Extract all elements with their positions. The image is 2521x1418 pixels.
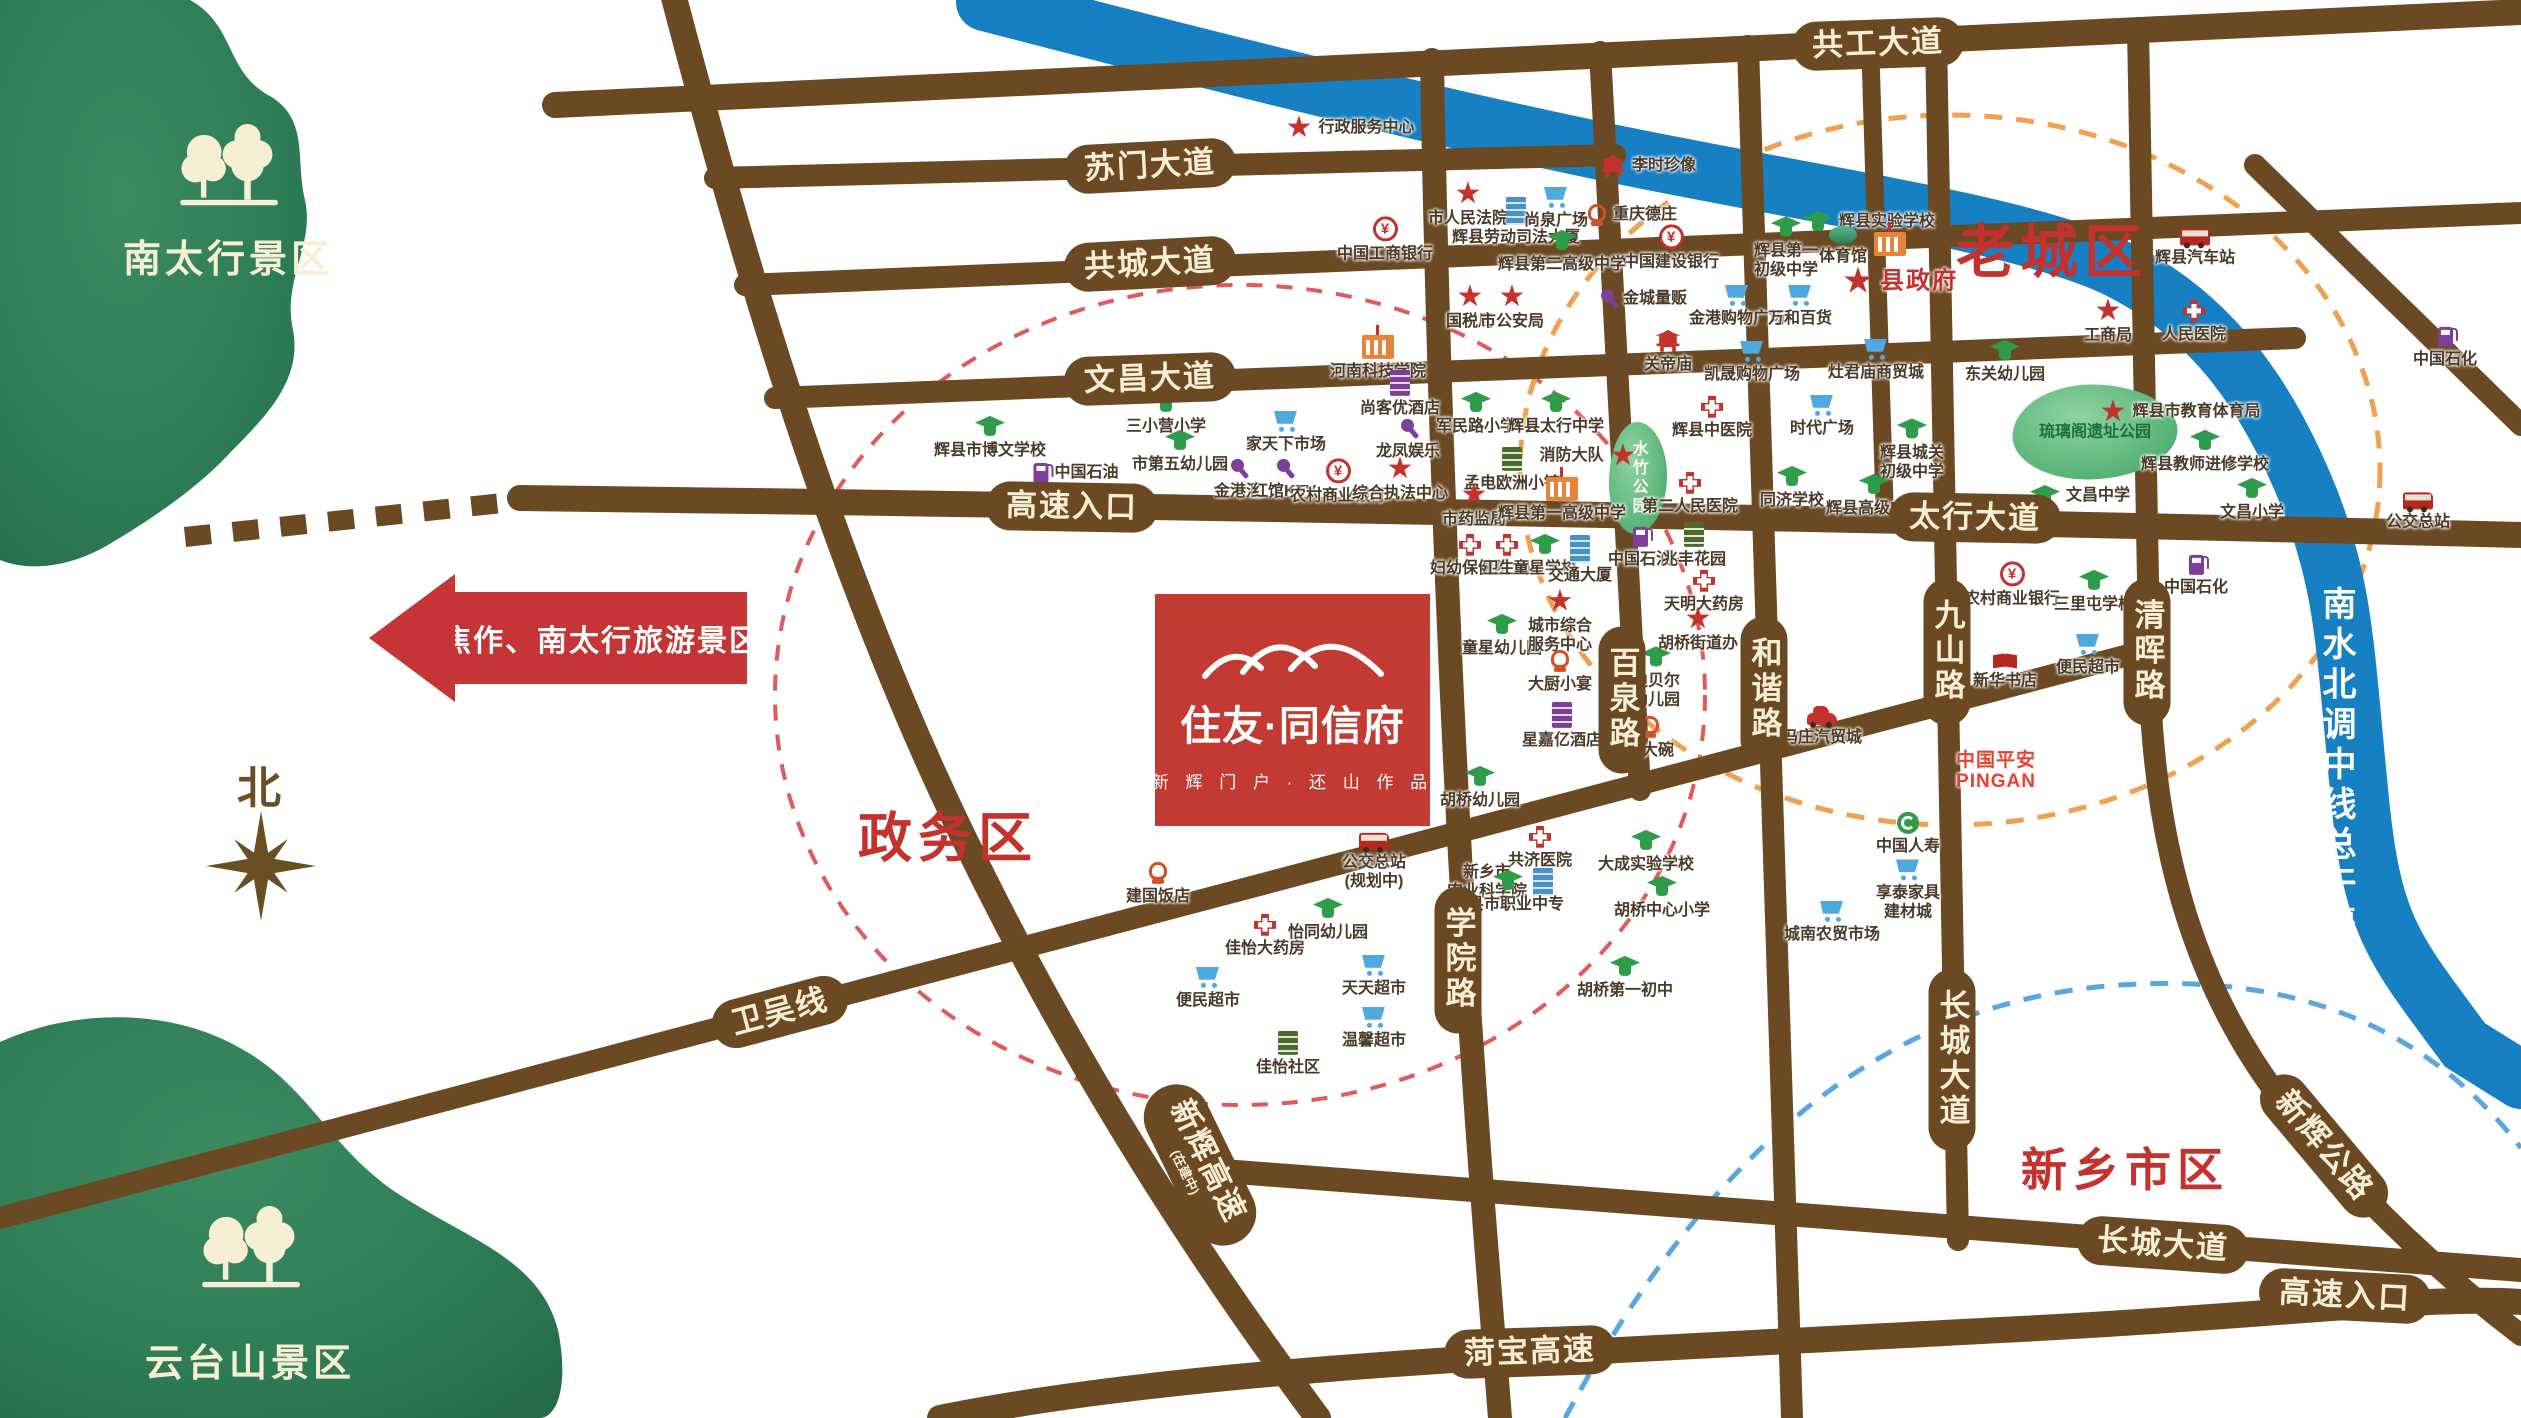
map-poi: 胡桥中心小学: [1614, 876, 1710, 920]
poi-label: 辉县第一 初级中学: [1754, 241, 1818, 279]
poi-label: 中国石化: [2164, 578, 2228, 597]
map-poi: 万和百货: [1768, 284, 1832, 328]
road-label-text: 清晖路: [2130, 599, 2165, 704]
school-icon: [1547, 230, 1577, 252]
road-label: 文昌大道: [1063, 352, 1237, 407]
map-poi: 辉县城关 初级中学: [1880, 418, 1944, 481]
area-label: 老城区: [1956, 205, 2148, 289]
gas-icon: [1632, 527, 1647, 547]
map-poi: 重庆德庄: [1587, 204, 1677, 226]
school-icon: [1647, 876, 1677, 898]
road-label-text: 菏宝高速: [1463, 1331, 1596, 1371]
school-icon: [1165, 430, 1195, 452]
cart-icon: [2075, 633, 2101, 655]
map-poi: 李时珍像: [1600, 155, 1696, 177]
poi-label: 天天超市: [1342, 979, 1406, 998]
poi-label: 军民路小学: [1436, 417, 1516, 436]
cart-icon: [1195, 966, 1221, 988]
map-poi: 佳怡社区: [1256, 1031, 1320, 1077]
road-label: 高速入口: [986, 481, 1159, 533]
map-poi: ★工商局: [2084, 299, 2132, 345]
map-poi: 中国平安 PINGAN: [1956, 751, 2036, 793]
map-poi: 大成实验学校: [1598, 830, 1694, 874]
poi-label: 公交总站 (规划中): [1342, 853, 1406, 891]
taihang-scenic-label: 南太行景区: [123, 228, 333, 283]
bus-icon: [2403, 492, 2433, 509]
map-poi: 辉县中医院: [1672, 396, 1752, 440]
bank-icon: ¥: [1999, 561, 2024, 586]
map-poi: ¥中国工商银行: [1337, 216, 1433, 263]
map-poi: 东关幼儿园: [1965, 340, 2045, 384]
map-poi: 辉县第一 初级中学: [1754, 216, 1818, 279]
road-label: 共城大道: [1063, 235, 1237, 293]
mic-icon: [1399, 419, 1417, 439]
poi-label: 中国石油: [1054, 463, 1118, 482]
poi-label: 行政服务中心: [1318, 118, 1414, 137]
poi-label: 万和百货: [1768, 309, 1832, 328]
poi-label: 灶君庙商贸城: [1828, 363, 1924, 382]
map-poi: 辉县汽车站: [2155, 228, 2235, 267]
road-label-text: 和谐路: [1747, 637, 1782, 742]
food-icon: [1587, 204, 1607, 226]
map-poi: ¥农村商业银行: [1964, 561, 2060, 608]
hosp-icon: [1529, 826, 1551, 848]
road-label-text: 共工大道: [1811, 23, 1944, 63]
poi-label: 县政府: [1880, 268, 1958, 297]
temple-icon: [1655, 330, 1681, 352]
map-poi: 大厨小宴: [1528, 650, 1592, 694]
star-icon: ★: [1387, 457, 1414, 481]
poi-label: 辉县中医院: [1672, 421, 1752, 440]
star-icon: ★: [1499, 285, 1526, 309]
yuntai-scenic-label: 云台山景区: [145, 1332, 355, 1387]
poi-label: 综合执法中心: [1352, 484, 1448, 503]
map-poi: 辉县第一高级中学: [1498, 477, 1626, 523]
map-poi: 第二人民医院: [1642, 472, 1738, 516]
bank-icon: ¥: [1658, 224, 1683, 249]
taihang-direction-arrow: 焦作、南太行旅游景区: [455, 592, 747, 684]
map-poi: ¥中国建设银行: [1623, 224, 1719, 271]
poi-label: 温馨超市: [1342, 1031, 1406, 1050]
school-icon: [1493, 870, 1523, 892]
poi-label: 家天下市场: [1246, 435, 1326, 454]
logo-subtitle: 新 辉 门 户 · 还 山 作 品: [1152, 768, 1433, 793]
map-poi: 中国人寿: [1876, 812, 1940, 856]
map-poi: 辉县太行中学: [1508, 392, 1604, 436]
poi-label: 新华书店: [1973, 671, 2037, 690]
school-icon: [1990, 340, 2020, 362]
map-poi: 公交总站: [2386, 492, 2450, 531]
poi-label: 辉县汽车站: [2155, 248, 2235, 267]
cart-icon: [1361, 954, 1387, 976]
cart-icon: [1361, 1006, 1387, 1028]
map-poi: 建国饭店: [1126, 862, 1190, 906]
school-icon: [1461, 392, 1491, 414]
poi-label: 胡桥幼儿园: [1440, 791, 1520, 810]
campus-icon: [1874, 232, 1906, 256]
map-poi: ★市公安局: [1480, 285, 1544, 331]
map-poi: [1874, 232, 1906, 256]
map-poi: 中国石化: [2164, 555, 2228, 597]
project-logo: 住友·同信府 新 辉 门 户 · 还 山 作 品: [1155, 594, 1430, 826]
bgreen-icon: [1502, 447, 1522, 471]
arrow-label: 焦作、南太行旅游景区: [441, 616, 761, 660]
hosp-icon: [1254, 914, 1276, 936]
poi-label: 李时珍像: [1632, 156, 1696, 175]
map-poi: 金城量贩: [1599, 289, 1687, 309]
school-icon: [2190, 430, 2220, 452]
school-icon: [1631, 830, 1661, 852]
map-poi: 同济学校: [1760, 466, 1824, 510]
road-label-text: 百泉路: [1605, 647, 1640, 752]
map-poi: 冯庄汽贸城: [1782, 705, 1862, 747]
bus-icon: [2180, 228, 2210, 245]
road-label-text: 苏门大道: [1083, 144, 1217, 186]
school-icon: [1777, 466, 1807, 488]
map-poi: 交通大厦: [1548, 535, 1612, 585]
road-label: 苏门大道: [1063, 137, 1237, 195]
map-poi: 三里屯学校: [2054, 570, 2134, 614]
star-icon: ★: [2095, 299, 2122, 323]
school-icon: [1859, 474, 1889, 496]
map-poi: 灶君庙商贸城: [1828, 338, 1924, 382]
logo-title: 住友·同信府: [1180, 692, 1405, 752]
road-label: 长城大道: [1929, 969, 1976, 1151]
star-icon: ★: [1685, 607, 1712, 631]
gas-icon: [1033, 463, 1048, 483]
poi-label: 冯庄汽贸城: [1782, 728, 1862, 747]
school-icon: [1771, 216, 1801, 238]
cart-icon: [1273, 410, 1299, 432]
school-icon: [1487, 614, 1517, 636]
poi-label: 人民医院: [2162, 325, 2226, 344]
compass-icon: [201, 806, 321, 926]
map-poi: ★县政府: [1842, 268, 1958, 297]
map-poi: 中国石油: [1033, 463, 1118, 483]
poi-label: 大厨小宴: [1528, 675, 1592, 694]
road-label: 和谐路: [1741, 617, 1788, 764]
river-label: 南水北调中线总干渠: [2312, 586, 2361, 946]
map-poi: 新华书店: [1973, 653, 2037, 690]
map-poi: 公交总站 (规划中): [1342, 833, 1406, 891]
map-poi: 天天超市: [1342, 954, 1406, 998]
poi-label: 东关幼儿园: [1965, 365, 2045, 384]
hotel-icon: [1390, 370, 1410, 396]
road-label-text: 高速入口: [1006, 487, 1139, 524]
poi-label: 时代广场: [1790, 419, 1854, 438]
map-poi: 尚泉广场: [1524, 186, 1588, 230]
hosp-icon: [1693, 570, 1715, 592]
cart-icon: [1895, 858, 1921, 880]
cart-icon: [1739, 340, 1765, 362]
map-poi: ★行政服务中心: [1286, 116, 1415, 140]
star-icon: ★: [2100, 400, 2127, 424]
map-poi: 辉县第二高级中学: [1498, 230, 1626, 274]
book-icon: [1993, 653, 2017, 668]
food-icon: [1550, 650, 1570, 672]
map-poi: 凯晟购物广场: [1704, 340, 1800, 384]
temple-icon: [1600, 155, 1626, 177]
poi-label: 胡桥第一初中: [1577, 981, 1673, 1000]
poi-label: 文昌中学: [2066, 486, 2130, 505]
car-icon: [1807, 713, 1837, 725]
poi-label: 凯晟购物广场: [1704, 365, 1800, 384]
bus-icon: [1359, 833, 1389, 850]
school-icon: [2237, 478, 2267, 500]
poi-label: 辉县市博文学校: [934, 441, 1046, 460]
poi-label: 金城量贩: [1623, 289, 1687, 308]
star-icon: ★: [1286, 116, 1313, 140]
road-label-text: 共城大道: [1083, 242, 1217, 284]
hosp-icon: [2183, 300, 2205, 322]
road-label-text: 九山路: [1930, 599, 1965, 704]
map-poi: 胡桥第一初中: [1577, 956, 1673, 1000]
poi-label: 农村商业银行: [1964, 589, 2060, 608]
road-label-text: 文昌大道: [1083, 358, 1216, 398]
poi-label: 中国工商银行: [1337, 244, 1433, 263]
poi-label: 辉县第二高级中学: [1498, 255, 1626, 274]
poi-label: 市药监局: [1442, 510, 1506, 529]
map-poi: 人民医院: [2162, 300, 2226, 344]
map-poi: 温馨超市: [1342, 1006, 1406, 1050]
cart-icon: [1787, 284, 1813, 306]
poi-label: 中国建设银行: [1623, 252, 1719, 271]
road-label: 高速入口: [2258, 1267, 2432, 1325]
road-label: 清晖路: [2124, 579, 2171, 726]
poi-label: 建国饭店: [1126, 887, 1190, 906]
cart-icon: [1819, 900, 1845, 922]
bgreen-icon: [1278, 1031, 1298, 1055]
cart-icon: [1543, 186, 1569, 208]
map-poi: 胡桥幼儿园: [1440, 766, 1520, 810]
map-poi: 星嘉亿酒店: [1522, 702, 1602, 750]
road-label: 菏宝高速: [1443, 1325, 1617, 1380]
map-poi: 尚客优酒店: [1360, 370, 1440, 418]
stadium-icon: [1829, 226, 1857, 244]
map-poi: 兆丰花园: [1662, 523, 1726, 569]
map-poi: ★辉县市教育体育局: [2100, 400, 2261, 424]
hosp-icon: [1701, 396, 1723, 418]
poi-label: 怡同幼儿园: [1288, 923, 1368, 942]
poi-label: 同济学校: [1760, 491, 1824, 510]
road-label: 九山路: [1924, 579, 1971, 726]
poi-label: 辉县太行中学: [1508, 417, 1604, 436]
star-icon: ★: [1461, 483, 1488, 507]
gas-icon: [2188, 555, 2203, 575]
map-poi: 军民路小学: [1436, 392, 1516, 436]
poi-label: 文昌小学: [2220, 503, 2284, 522]
life-icon: [1897, 812, 1919, 834]
poi-label: 第二人民医院: [1642, 497, 1738, 516]
map-poi: 辉县市博文学校: [934, 416, 1046, 460]
area-label: 新乡市区: [2021, 1134, 2229, 1200]
poi-label: 胡桥中心小学: [1614, 901, 1710, 920]
map-poi: 城南农贸市场: [1784, 900, 1880, 944]
map-poi: 怡同幼儿园: [1288, 898, 1368, 942]
poi-label: 辉县教师进修学校: [2141, 455, 2269, 474]
poi-label: 公交总站: [2386, 512, 2450, 531]
poi-label: 三里屯学校: [2054, 595, 2134, 614]
poi-label: 便民超市: [2056, 658, 2120, 677]
poi-label: 尚泉广场: [1524, 211, 1588, 230]
campus-icon: [1546, 477, 1578, 501]
road-label-text: 太行大道: [1909, 498, 2042, 535]
area-label: 政务区: [858, 794, 1038, 873]
hosp-icon: [1679, 472, 1701, 494]
yuntai-trees-icon: [185, 1190, 315, 1300]
gas-icon: [2437, 327, 2452, 347]
road-label-text: 高速入口: [2278, 1274, 2412, 1316]
poi-label: 兆丰花园: [1662, 550, 1726, 569]
map-poi: ★综合执法中心: [1352, 457, 1448, 503]
road-label-text: 长城大道: [1935, 989, 1970, 1129]
school-icon: [1465, 766, 1495, 788]
taihang-trees-icon: [163, 108, 293, 218]
road-label: 百泉路: [1599, 627, 1646, 774]
map-poi: 关帝庙: [1644, 330, 1692, 374]
poi-label: 交通大厦: [1548, 566, 1612, 585]
school-icon: [2079, 570, 2109, 592]
map-poi: 辉县教师进修学校: [2141, 430, 2269, 474]
food-icon: [1148, 862, 1168, 884]
map-poi: 便民超市: [1176, 966, 1240, 1010]
poi-label: 尚客优酒店: [1360, 399, 1440, 418]
map-poi: 便民超市: [2056, 633, 2120, 677]
road-label: 学院路: [1435, 887, 1482, 1034]
bank-icon: ¥: [1372, 216, 1397, 241]
cart-icon: [1809, 394, 1835, 416]
poi-label: 中国石化: [2413, 350, 2477, 369]
school-icon: [975, 416, 1005, 438]
star-icon: ★: [1610, 444, 1637, 468]
tower-icon: [1570, 535, 1590, 563]
park-label: 琉璃阁遗址公园: [2039, 422, 2151, 441]
school-icon: [1313, 898, 1343, 920]
mic-icon: [1229, 459, 1247, 479]
map-poi: 文昌小学: [2220, 478, 2284, 522]
map-poi: ★市药监局: [1442, 483, 1506, 529]
school-icon: [1897, 418, 1927, 440]
poi-label: 关帝庙: [1644, 355, 1692, 374]
bank-icon: ¥: [1325, 458, 1350, 483]
poi-label: 中国人寿: [1876, 837, 1940, 856]
map-poi: 享泰家具 建材城: [1876, 858, 1940, 921]
star-icon: ★: [1547, 589, 1574, 613]
poi-label: 享泰家具 建材城: [1876, 883, 1940, 921]
tower-icon: [1506, 197, 1526, 225]
map-poi: 家天下市场: [1246, 410, 1326, 454]
cart-icon: [1863, 338, 1889, 360]
school-icon: [1541, 392, 1571, 414]
campus-icon: [1362, 335, 1394, 359]
poi-label: 星嘉亿酒店: [1522, 731, 1602, 750]
star-icon: ★: [1842, 270, 1874, 294]
location-map: 南太行景区 云台山景区 焦作、南太行旅游景区 北 南水北调中线总干渠: [0, 0, 2521, 1418]
mountain-icon: [1193, 614, 1393, 690]
cart-icon: [1724, 284, 1750, 306]
hotel-icon: [1552, 702, 1572, 728]
poi-label: 便民超市: [1176, 991, 1240, 1010]
poi-label: 辉县市教育体育局: [2132, 402, 2260, 421]
map-poi: 中国石化: [2413, 327, 2477, 369]
school-icon: [1610, 956, 1640, 978]
map-poi: 时代广场: [1790, 394, 1854, 438]
mic-icon: [1599, 289, 1617, 309]
poi-label: 辉县第一高级中学: [1498, 504, 1626, 523]
poi-label: 重庆德庄: [1613, 205, 1677, 224]
poi-label: 城南农贸市场: [1784, 925, 1880, 944]
poi-label: 佳怡社区: [1256, 1058, 1320, 1077]
poi-label: 市公安局: [1480, 312, 1544, 331]
poi-label: 中国平安 PINGAN: [1956, 751, 2036, 793]
road-label-text: 长城大道: [2096, 1222, 2230, 1266]
road-label: 太行大道: [1889, 492, 2062, 544]
taihang-scenic-zone: [0, 0, 307, 566]
poi-label: 工商局: [2084, 326, 2132, 345]
bgreen-icon: [1684, 523, 1704, 547]
road-label-text: 学院路: [1441, 907, 1476, 1012]
poi-label: 大成实验学校: [1598, 855, 1694, 874]
hosp-icon: [1459, 534, 1481, 556]
map-poi: ★城市综合 服务中心: [1528, 589, 1592, 654]
road-label: 共工大道: [1791, 17, 1965, 72]
